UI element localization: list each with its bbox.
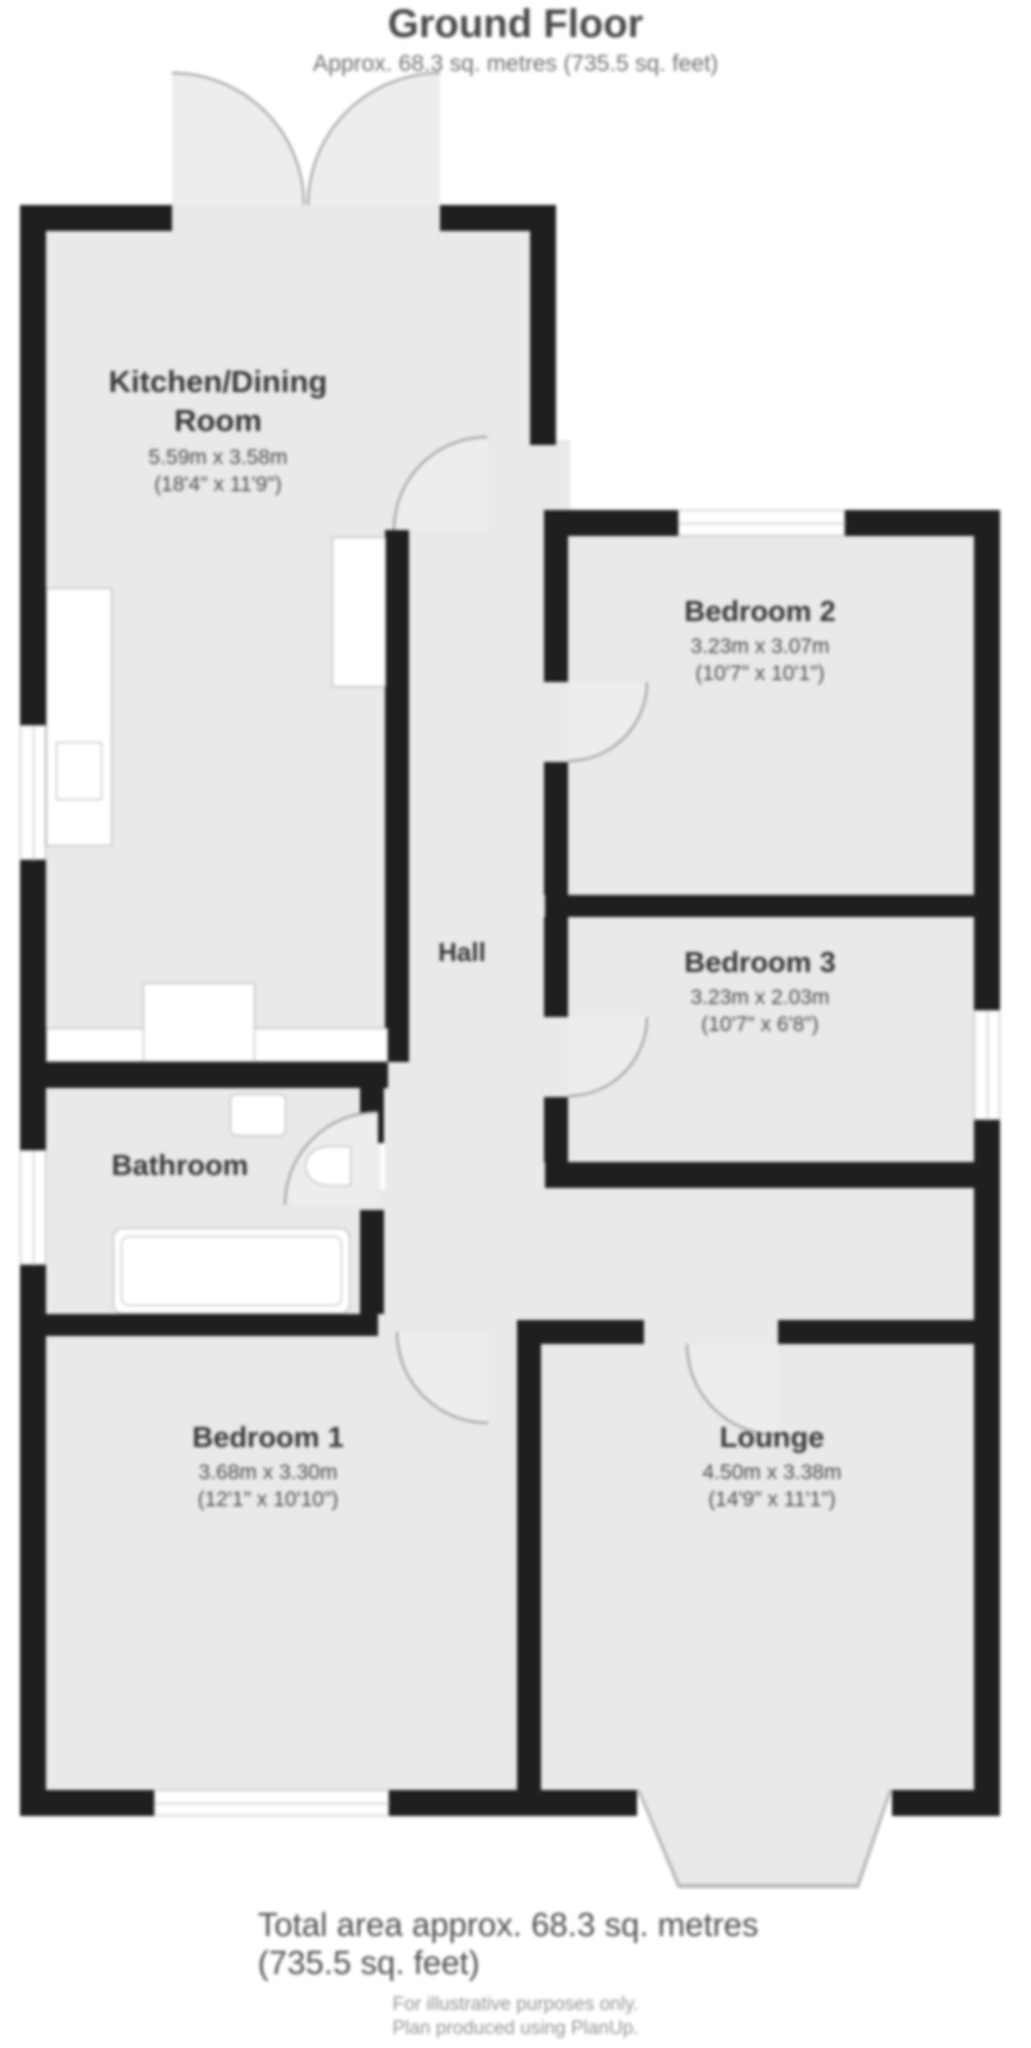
room-label-bedroom-1: Bedroom 1 3.68m x 3.30m (12'1" x 10'10") [192, 1420, 343, 1513]
bay-window-glass [640, 1790, 889, 1884]
wall [974, 1320, 1000, 1790]
room-label-bedroom-2: Bedroom 2 3.23m x 3.07m (10'7" x 10'1") [684, 594, 835, 687]
room-dims-metric: 3.23m x 3.07m [684, 633, 835, 660]
room-dims-imperial: (18'4" x 11'9") [109, 471, 328, 498]
floor-bottom-block [20, 1320, 1000, 1792]
room-label-hall: Hall [438, 934, 486, 970]
wall [892, 1790, 1000, 1816]
floor-hall [385, 440, 570, 1320]
room-dims-imperial: (12'1" x 10'10") [192, 1486, 343, 1513]
room-name: Kitchen/Dining [109, 362, 328, 401]
wall [545, 895, 1000, 917]
footer-credit: Plan produced using PlanUp. [392, 2018, 638, 2040]
wall [360, 1210, 384, 1314]
window-bathroom [20, 1150, 46, 1265]
door-arc-french-left [172, 72, 305, 205]
wall [974, 510, 1000, 1010]
footer-disclaimer: For illustrative purposes only. [393, 1994, 639, 2016]
wall [544, 1097, 568, 1162]
wall [974, 1120, 1000, 1320]
page-subtitle: Approx. 68.3 sq. metres (735.5 sq. feet) [313, 50, 718, 77]
wall [778, 1320, 1000, 1344]
window-bedroom-1 [154, 1790, 389, 1816]
kitchen-sink [56, 742, 102, 800]
room-label-lounge: Lounge 4.50m x 3.38m (14'9" x 11'1") [703, 1420, 842, 1513]
bay-window [637, 1790, 892, 1888]
wall [517, 1344, 541, 1790]
floorplan-page: Ground Floor Approx. 68.3 sq. metres (73… [0, 0, 1031, 2048]
wall [530, 205, 556, 445]
wall [544, 510, 568, 682]
basin [305, 1146, 351, 1186]
room-name: Hall [438, 934, 486, 970]
room-dims-metric: 3.23m x 2.03m [684, 984, 835, 1011]
wall [20, 1062, 388, 1088]
window-bedroom-3 [974, 1010, 1000, 1120]
room-dims-metric: 5.59m x 3.58m [109, 444, 328, 471]
page-title: Ground Floor [388, 2, 644, 47]
total-area-text: Total area approx. 68.3 sq. metres (735.… [258, 1906, 774, 1982]
room-dims-metric: 3.68m x 3.30m [192, 1459, 343, 1486]
window-kitchen [20, 725, 46, 860]
room-dims-imperial: (14'9" x 11'1") [703, 1486, 842, 1513]
wall [517, 1320, 644, 1344]
room-name: Bedroom 2 [684, 594, 835, 630]
room-name: Bathroom [112, 1148, 249, 1184]
wall [20, 1265, 46, 1320]
wall [545, 1162, 1000, 1188]
wall [20, 1790, 154, 1816]
wall [20, 1320, 46, 1790]
room-label-bedroom-3: Bedroom 3 3.23m x 2.03m (10'7" x 6'8") [684, 945, 835, 1038]
kitchen-counter-right [332, 537, 386, 687]
kitchen-counter-left [46, 588, 112, 846]
room-dims-metric: 4.50m x 3.38m [703, 1459, 842, 1486]
wall [20, 205, 46, 725]
room-dims-imperial: (10'7" x 6'8") [684, 1011, 835, 1038]
wall [389, 1790, 637, 1816]
kitchen-cooker [143, 983, 255, 1062]
floor-corridor [354, 1190, 1000, 1320]
room-name: Bedroom 3 [684, 945, 835, 981]
wall [20, 860, 46, 1090]
wall [20, 1090, 46, 1150]
room-name: Lounge [703, 1420, 842, 1456]
wall [544, 762, 568, 895]
room-dims-imperial: (10'7" x 10'1") [684, 660, 835, 687]
bath-tub-rim [121, 1236, 342, 1306]
wall [20, 1314, 378, 1336]
wall [544, 917, 568, 1017]
toilet [230, 1094, 286, 1136]
window-bedroom-2 [678, 510, 845, 536]
room-name: Bedroom 1 [192, 1420, 343, 1456]
room-name: Room [109, 401, 328, 440]
wall [385, 530, 409, 1062]
room-label-kitchen: Kitchen/Dining Room 5.59m x 3.58m (18'4"… [109, 362, 328, 498]
door-arc-french-right [307, 72, 440, 205]
room-label-bathroom: Bathroom [112, 1148, 249, 1184]
